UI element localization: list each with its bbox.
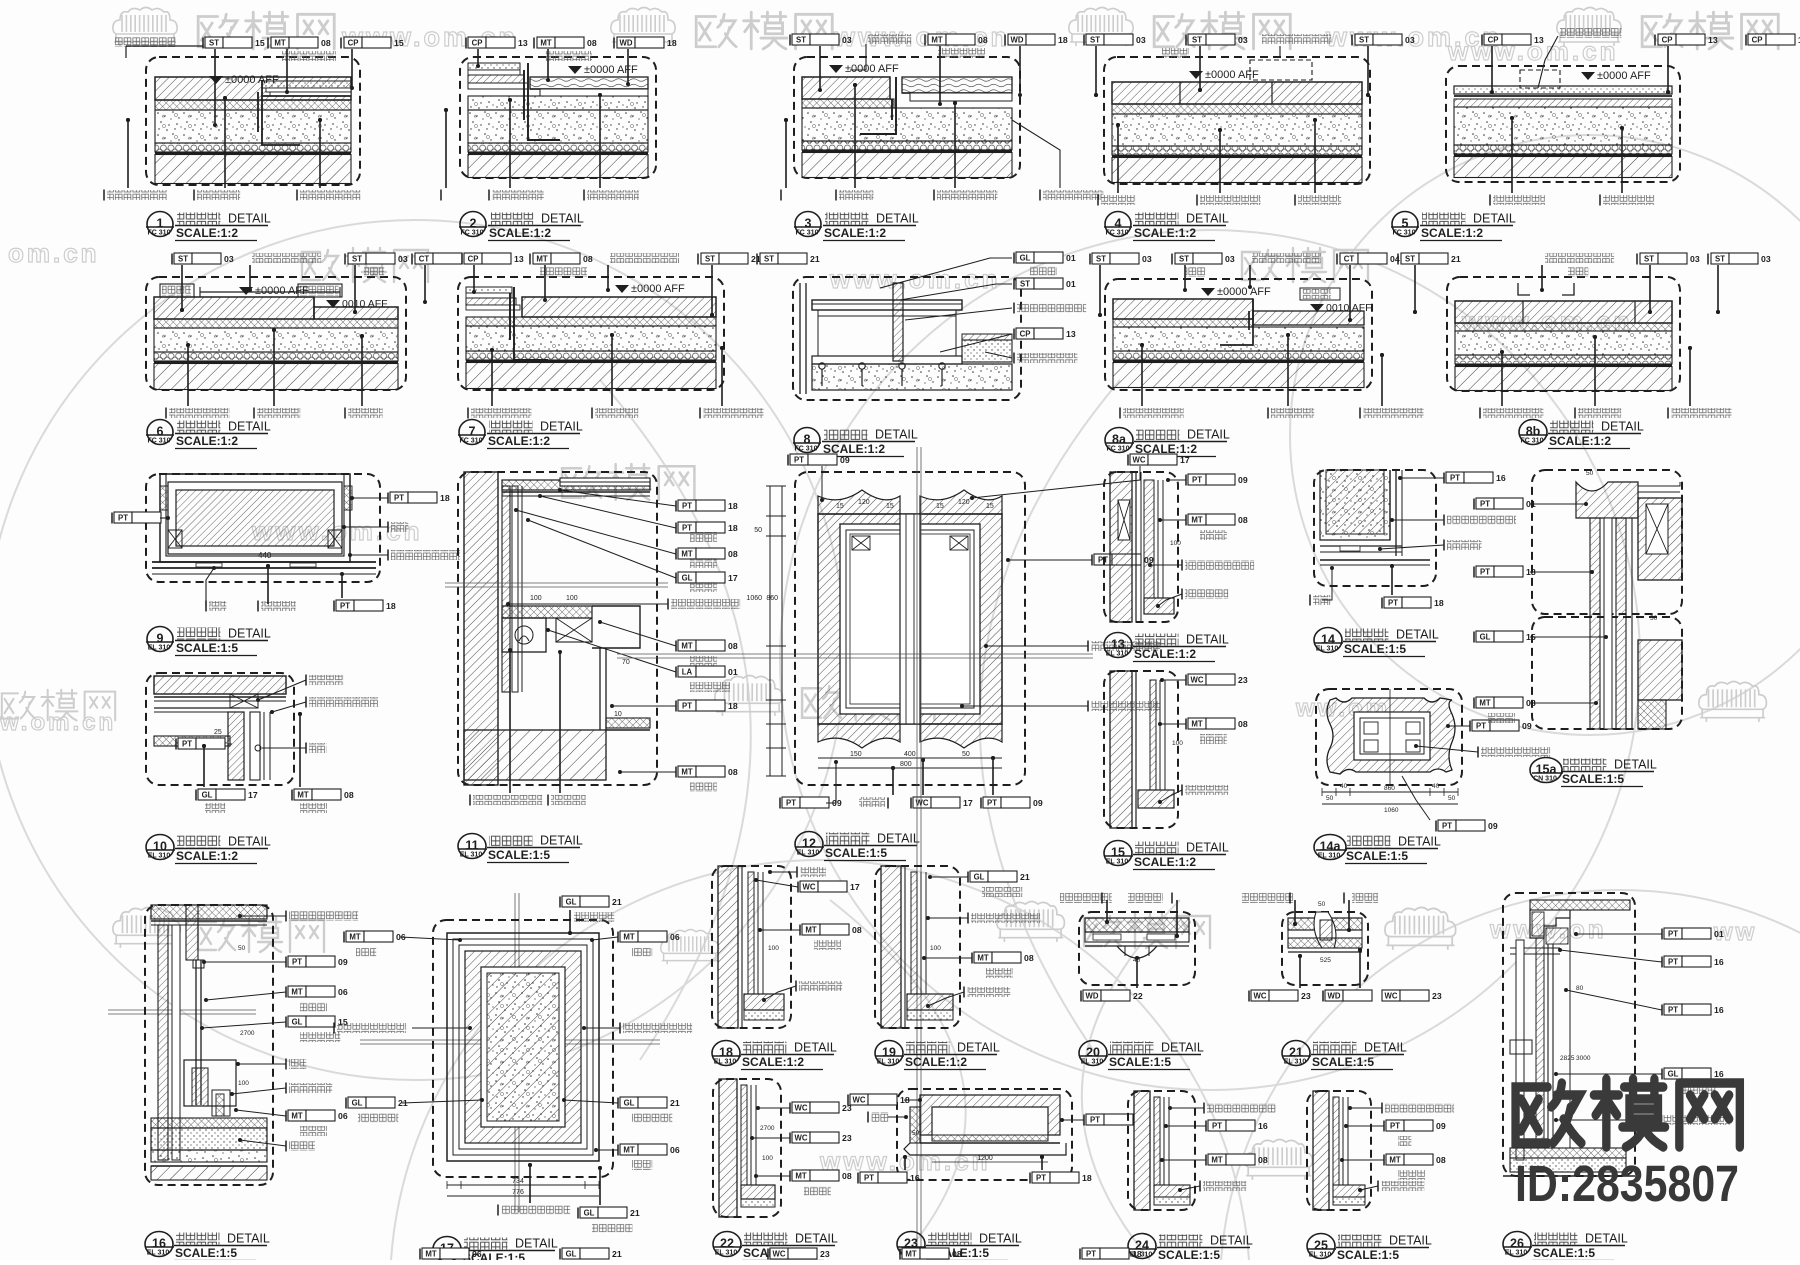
- svg-text:03: 03: [842, 35, 852, 45]
- svg-text:100: 100: [768, 945, 779, 952]
- svg-text:18: 18: [728, 501, 738, 511]
- svg-text:16: 16: [1714, 1069, 1724, 1079]
- svg-text:SCALE:1:2: SCALE:1:2: [176, 849, 238, 863]
- svg-text:DETAIL: DETAIL: [957, 1041, 1000, 1055]
- svg-text:1060: 1060: [746, 595, 762, 602]
- svg-text:860: 860: [1384, 785, 1395, 792]
- svg-text:DETAIL: DETAIL: [877, 832, 920, 846]
- svg-text:23: 23: [842, 1133, 852, 1143]
- svg-text:MT: MT: [681, 768, 692, 777]
- svg-text:ST: ST: [1096, 255, 1106, 264]
- svg-text:18: 18: [667, 38, 677, 48]
- svg-text:PT: PT: [987, 799, 997, 808]
- svg-text:06: 06: [338, 987, 348, 997]
- svg-text:WC: WC: [853, 1096, 866, 1105]
- svg-text:±0000 AFF: ±0000 AFF: [255, 285, 309, 297]
- svg-text:40: 40: [1432, 783, 1440, 790]
- svg-text:50: 50: [962, 751, 970, 758]
- svg-text:860: 860: [766, 595, 778, 602]
- svg-text:06: 06: [670, 1145, 680, 1155]
- svg-text:MT: MT: [905, 1250, 916, 1259]
- svg-text:DETAIL: DETAIL: [1601, 420, 1644, 434]
- svg-text:09: 09: [338, 957, 348, 967]
- svg-text:EL 310: EL 310: [1318, 853, 1341, 860]
- svg-text:SCALE:1:2: SCALE:1:2: [1134, 855, 1196, 869]
- svg-text:15: 15: [394, 38, 404, 48]
- svg-text:734: 734: [512, 1178, 524, 1185]
- svg-text:1200: 1200: [977, 1155, 993, 1162]
- svg-text:18: 18: [728, 701, 738, 711]
- svg-text:09: 09: [1238, 475, 1248, 485]
- svg-text:GL: GL: [682, 574, 693, 583]
- svg-text:800: 800: [900, 761, 912, 768]
- svg-text:DETAIL: DETAIL: [228, 420, 271, 434]
- svg-text:03: 03: [1690, 254, 1700, 264]
- svg-text:GL: GL: [292, 1018, 303, 1027]
- svg-text:MT: MT: [274, 39, 285, 48]
- svg-text:MT: MT: [1191, 516, 1202, 525]
- svg-text:PT: PT: [394, 494, 404, 503]
- svg-text:400: 400: [904, 751, 916, 758]
- svg-text:16: 16: [1496, 473, 1506, 483]
- svg-text:WD: WD: [1086, 992, 1099, 1001]
- svg-text:17: 17: [850, 882, 860, 892]
- svg-text:50: 50: [1448, 795, 1456, 802]
- svg-text:23: 23: [820, 1249, 830, 1259]
- svg-text:WC: WC: [1254, 992, 1267, 1001]
- svg-text:SCALE:1:2: SCALE:1:2: [1134, 226, 1196, 240]
- svg-text:CP: CP: [1752, 36, 1763, 45]
- svg-text:SCALE:1:5: SCALE:1:5: [1562, 772, 1624, 786]
- svg-text:06: 06: [670, 932, 680, 942]
- svg-text:FC 310: FC 310: [1521, 438, 1544, 445]
- svg-text:23: 23: [1432, 991, 1442, 1001]
- svg-text:SCALE:1:5: SCALE:1:5: [1158, 1248, 1220, 1260]
- svg-text:±0000 AFF: ±0000 AFF: [845, 63, 899, 75]
- svg-text:14a: 14a: [1320, 840, 1342, 854]
- svg-text:03: 03: [1136, 35, 1146, 45]
- svg-text:11: 11: [465, 839, 478, 853]
- svg-text:SCALE:1:2: SCALE:1:2: [176, 434, 238, 448]
- svg-text:120: 120: [958, 499, 970, 506]
- svg-text:14: 14: [1321, 633, 1335, 647]
- svg-text:SCALE:1:5: SCALE:1:5: [488, 848, 550, 862]
- svg-text:15: 15: [1111, 846, 1125, 860]
- svg-text:21: 21: [1289, 1046, 1303, 1060]
- svg-text:SCALE:1:5: SCALE:1:5: [175, 1246, 237, 1260]
- svg-text:8b: 8b: [1526, 425, 1541, 439]
- svg-text:SCALE:1:5: SCALE:1:5: [176, 641, 238, 655]
- svg-text:08: 08: [321, 38, 331, 48]
- svg-text:ST: ST: [764, 255, 774, 264]
- svg-text:ST: ST: [705, 255, 715, 264]
- svg-text:SCALE:1:2: SCALE:1:2: [1549, 434, 1611, 448]
- svg-text:DETAIL: DETAIL: [1187, 428, 1230, 442]
- svg-text:±0000 AFF: ±0000 AFF: [584, 64, 638, 76]
- svg-text:100: 100: [762, 1155, 773, 1162]
- svg-text:SCALE:1:2: SCALE:1:2: [1421, 226, 1483, 240]
- svg-text:3: 3: [805, 217, 812, 231]
- svg-text:13: 13: [514, 254, 524, 264]
- svg-text:08: 08: [1238, 515, 1248, 525]
- svg-text:16: 16: [1714, 1005, 1724, 1015]
- svg-text:50: 50: [912, 1130, 920, 1137]
- svg-text:440: 440: [258, 551, 272, 560]
- svg-text:DETAIL: DETAIL: [876, 212, 919, 226]
- svg-text:25: 25: [214, 729, 222, 736]
- svg-text:PT: PT: [1480, 500, 1490, 509]
- svg-text:CN 310: CN 310: [1533, 776, 1557, 783]
- svg-text:PT: PT: [1212, 1122, 1222, 1131]
- svg-text:08: 08: [1238, 719, 1248, 729]
- svg-text:100: 100: [566, 595, 578, 602]
- svg-text:18: 18: [386, 601, 396, 611]
- svg-text:08: 08: [842, 1171, 852, 1181]
- svg-text:CP: CP: [472, 39, 483, 48]
- svg-text:PT: PT: [794, 456, 804, 465]
- svg-text:SCALE:1:5: SCALE:1:5: [1344, 642, 1406, 656]
- svg-text:PT: PT: [1480, 568, 1490, 577]
- svg-text:EL 310: EL 310: [714, 1059, 737, 1066]
- svg-text:DETAIL: DETAIL: [227, 1232, 270, 1246]
- svg-text:17: 17: [963, 798, 973, 808]
- svg-text:FC 310: FC 310: [1107, 446, 1130, 453]
- svg-text:08: 08: [728, 549, 738, 559]
- svg-text:EL 310: EL 310: [460, 852, 483, 859]
- svg-text:DETAIL: DETAIL: [540, 834, 583, 848]
- svg-text:WD: WD: [620, 39, 633, 48]
- svg-text:776: 776: [512, 1189, 524, 1196]
- svg-text:DETAIL: DETAIL: [515, 1237, 558, 1251]
- svg-text:DETAIL: DETAIL: [794, 1041, 837, 1055]
- svg-text:PT: PT: [786, 799, 796, 808]
- svg-text:GL: GL: [974, 873, 985, 882]
- svg-text:PT: PT: [1442, 822, 1452, 831]
- svg-text:19: 19: [882, 1046, 896, 1060]
- svg-text:EL 310: EL 310: [1284, 1059, 1307, 1066]
- svg-text:7: 7: [469, 425, 476, 439]
- svg-text:EL 310: EL 310: [1505, 1250, 1528, 1257]
- svg-text:ST: ST: [178, 255, 188, 264]
- svg-text:525: 525: [1320, 957, 1331, 964]
- svg-text:PT: PT: [682, 524, 692, 533]
- svg-text:01: 01: [1714, 929, 1724, 939]
- svg-text:9: 9: [157, 632, 164, 646]
- svg-text:100: 100: [930, 945, 941, 952]
- svg-text:FC 310: FC 310: [148, 230, 171, 237]
- svg-text:2825: 2825: [1560, 1055, 1575, 1062]
- svg-text:22: 22: [720, 1237, 734, 1251]
- svg-text:MT: MT: [977, 954, 988, 963]
- svg-text:SCALE:1:2: SCALE:1:2: [824, 226, 886, 240]
- svg-text:SCALE:1:5: SCALE:1:5: [1109, 1055, 1171, 1069]
- svg-text:SCALE:1:2: SCALE:1:2: [176, 226, 238, 240]
- svg-text:EL 310: EL 310: [1106, 859, 1129, 866]
- svg-text:08: 08: [344, 790, 354, 800]
- svg-text:09: 09: [1522, 721, 1532, 731]
- svg-text:1: 1: [157, 217, 164, 231]
- svg-text:15: 15: [986, 503, 994, 510]
- svg-text:LA: LA: [682, 668, 693, 677]
- svg-text:2: 2: [470, 217, 477, 231]
- svg-text:13: 13: [1111, 638, 1125, 652]
- svg-text:PT: PT: [1476, 722, 1486, 731]
- svg-text:FC 310: FC 310: [460, 438, 483, 445]
- svg-text:18: 18: [440, 493, 450, 503]
- svg-text:50: 50: [238, 945, 246, 952]
- svg-text:40: 40: [1340, 783, 1348, 790]
- svg-text:ST: ST: [1644, 255, 1654, 264]
- svg-text:03: 03: [1405, 35, 1415, 45]
- svg-text:16: 16: [152, 1237, 166, 1251]
- svg-text:09: 09: [1033, 798, 1043, 808]
- svg-text:21: 21: [670, 1098, 680, 1108]
- svg-text:PT: PT: [1192, 476, 1202, 485]
- svg-text:MT: MT: [1211, 1156, 1222, 1165]
- svg-text:DETAIL: DETAIL: [541, 212, 584, 226]
- svg-text:GL: GL: [1020, 254, 1031, 263]
- svg-text:FC 310: FC 310: [795, 446, 818, 453]
- svg-text:MT: MT: [805, 926, 816, 935]
- svg-text:EL 310: EL 310: [1081, 1059, 1104, 1066]
- svg-text:3000: 3000: [1576, 1055, 1591, 1062]
- svg-text:ID:2835807: ID:2835807: [1515, 1155, 1739, 1212]
- svg-text:DETAIL: DETAIL: [875, 428, 918, 442]
- svg-text:SCALE:1:2: SCALE:1:2: [488, 434, 550, 448]
- svg-text:EL 310: EL 310: [877, 1059, 900, 1066]
- svg-text:DETAIL: DETAIL: [1585, 1232, 1628, 1246]
- svg-text:WC: WC: [1385, 992, 1398, 1001]
- svg-text:18: 18: [719, 1046, 733, 1060]
- svg-text:FC 310: FC 310: [796, 230, 819, 237]
- svg-text:PT: PT: [1668, 930, 1678, 939]
- svg-text:50: 50: [1650, 615, 1658, 622]
- svg-text:PT: PT: [1388, 599, 1398, 608]
- svg-text:DETAIL: DETAIL: [228, 212, 271, 226]
- svg-text:MT: MT: [291, 988, 302, 997]
- svg-text:ST: ST: [1405, 255, 1415, 264]
- svg-text:WC: WC: [916, 799, 929, 808]
- svg-text:MT: MT: [1479, 699, 1490, 708]
- svg-text:GL: GL: [566, 898, 577, 907]
- svg-text:EL 310: EL 310: [1309, 1252, 1332, 1259]
- svg-text:SCALE:1:5: SCALE:1:5: [825, 846, 887, 860]
- svg-text:MT: MT: [1389, 1156, 1400, 1165]
- svg-text:SCALE:1:5: SCALE:1:5: [1533, 1246, 1595, 1260]
- svg-text:MT: MT: [681, 550, 692, 559]
- svg-text:01: 01: [728, 667, 738, 677]
- svg-text:18: 18: [1082, 1173, 1092, 1183]
- svg-text:EL 310: EL 310: [148, 645, 171, 652]
- svg-text:SCALE:1:2: SCALE:1:2: [1134, 647, 1196, 661]
- svg-text:21: 21: [612, 897, 622, 907]
- svg-text:FC 310: FC 310: [148, 438, 171, 445]
- svg-text:DETAIL: DETAIL: [1186, 633, 1229, 647]
- svg-text:PT: PT: [118, 514, 128, 523]
- svg-text:PT: PT: [682, 502, 692, 511]
- svg-text:08: 08: [728, 641, 738, 651]
- svg-text:06: 06: [338, 1111, 348, 1121]
- svg-text:80: 80: [1576, 985, 1584, 992]
- svg-text:18: 18: [1434, 598, 1444, 608]
- svg-text:15a: 15a: [1536, 763, 1558, 777]
- svg-text:DETAIL: DETAIL: [228, 627, 271, 641]
- svg-text:±0000 AFF: ±0000 AFF: [1205, 69, 1259, 81]
- svg-text:MT: MT: [681, 642, 692, 651]
- svg-text:23: 23: [1301, 991, 1311, 1001]
- svg-text:PT: PT: [1036, 1174, 1046, 1183]
- svg-text:MT: MT: [931, 36, 942, 45]
- svg-text:01: 01: [1066, 279, 1076, 289]
- svg-text:09: 09: [1436, 1121, 1446, 1131]
- svg-text:MT: MT: [795, 1172, 806, 1181]
- svg-text:01: 01: [1066, 253, 1076, 263]
- svg-text:16: 16: [910, 1173, 920, 1183]
- svg-text:120: 120: [858, 499, 870, 506]
- svg-text:CP: CP: [348, 39, 359, 48]
- svg-text:21: 21: [1451, 254, 1461, 264]
- svg-text:09: 09: [840, 455, 850, 465]
- svg-text:08: 08: [978, 35, 988, 45]
- svg-text:PT: PT: [1090, 1116, 1100, 1125]
- svg-text:08: 08: [952, 1249, 962, 1259]
- svg-text:WC: WC: [1133, 456, 1146, 465]
- svg-text:DETAIL: DETAIL: [1186, 841, 1229, 855]
- svg-text:1060: 1060: [1384, 807, 1399, 814]
- svg-text:MT: MT: [349, 933, 360, 942]
- svg-text:FC 310: FC 310: [461, 230, 484, 237]
- svg-text:SCALE:1:2: SCALE:1:2: [905, 1055, 967, 1069]
- svg-text:13: 13: [1708, 35, 1718, 45]
- svg-text:13: 13: [1066, 329, 1076, 339]
- svg-text:PT: PT: [182, 740, 192, 749]
- svg-text:12: 12: [802, 837, 816, 851]
- svg-text:08: 08: [1436, 1155, 1446, 1165]
- svg-text:EL 310: EL 310: [797, 850, 820, 857]
- svg-text:15: 15: [836, 503, 844, 510]
- svg-text:w.om.cn: w.om.cn: [0, 709, 116, 736]
- svg-text:SCALE:1:5: SCALE:1:5: [1346, 849, 1408, 863]
- svg-text:EL 310: EL 310: [1106, 651, 1129, 658]
- svg-text:ST: ST: [1090, 36, 1100, 45]
- svg-text:08: 08: [1258, 1155, 1268, 1165]
- svg-text:ST: ST: [1715, 255, 1725, 264]
- svg-text:ST: ST: [1020, 280, 1030, 289]
- svg-text:±0000 AFF: ±0000 AFF: [225, 74, 279, 86]
- svg-text:SCALE:1:5: SCALE:1:5: [1312, 1055, 1374, 1069]
- svg-text:18: 18: [728, 523, 738, 533]
- svg-text:GL: GL: [566, 1250, 577, 1259]
- svg-text:17: 17: [248, 790, 258, 800]
- svg-text:17: 17: [1180, 455, 1190, 465]
- svg-text:PT: PT: [1086, 1250, 1096, 1259]
- svg-text:21: 21: [1020, 872, 1030, 882]
- svg-text:GL: GL: [584, 1209, 595, 1218]
- svg-text:03: 03: [224, 254, 234, 264]
- svg-text:ST: ST: [1359, 36, 1369, 45]
- svg-text:08: 08: [852, 925, 862, 935]
- svg-text:08: 08: [587, 38, 597, 48]
- svg-text:0010 AFF: 0010 AFF: [342, 298, 388, 310]
- svg-text:18: 18: [1132, 1249, 1142, 1259]
- svg-text:10: 10: [153, 840, 167, 854]
- svg-text:CP: CP: [468, 255, 479, 264]
- svg-text:MT: MT: [291, 1112, 302, 1121]
- svg-text:WD: WD: [1328, 992, 1341, 1001]
- svg-text:23: 23: [1238, 675, 1248, 685]
- svg-text:100: 100: [530, 595, 542, 602]
- svg-text:DETAIL: DETAIL: [540, 420, 583, 434]
- svg-text:ST: ST: [209, 39, 219, 48]
- svg-text:www.om.cn: www.om.cn: [1447, 36, 1619, 66]
- svg-text:MT: MT: [536, 255, 547, 264]
- svg-text:WC: WC: [773, 1250, 786, 1259]
- svg-text:MT: MT: [297, 791, 308, 800]
- svg-text:om.cn: om.cn: [8, 238, 100, 268]
- svg-text:GL: GL: [1480, 633, 1491, 642]
- svg-text:PT: PT: [1668, 1006, 1678, 1015]
- svg-text:ST: ST: [796, 36, 806, 45]
- svg-text:CP: CP: [1020, 330, 1031, 339]
- svg-text:100: 100: [1172, 740, 1183, 747]
- svg-text:PT: PT: [1668, 958, 1678, 967]
- svg-text:±0000 AFF: ±0000 AFF: [1597, 70, 1651, 82]
- svg-text:100: 100: [1170, 540, 1181, 547]
- svg-text:DETAIL: DETAIL: [1186, 212, 1229, 226]
- svg-text:22: 22: [1133, 991, 1143, 1001]
- svg-text:DETAIL: DETAIL: [1614, 758, 1657, 772]
- svg-text:CT: CT: [1344, 255, 1355, 264]
- svg-text:13: 13: [518, 38, 528, 48]
- svg-text:6: 6: [157, 425, 164, 439]
- svg-text:PT: PT: [340, 602, 350, 611]
- svg-text:MT: MT: [1191, 720, 1202, 729]
- svg-text:16: 16: [1714, 957, 1724, 967]
- svg-text:EL 310: EL 310: [147, 1250, 170, 1257]
- svg-text:70: 70: [622, 659, 630, 666]
- svg-text:PT: PT: [864, 1174, 874, 1183]
- svg-text:ST: ST: [352, 255, 362, 264]
- svg-text:08: 08: [1024, 953, 1034, 963]
- svg-text:GL: GL: [202, 791, 213, 800]
- svg-text:DETAIL: DETAIL: [1473, 212, 1516, 226]
- svg-text:5: 5: [1402, 217, 1409, 231]
- svg-text:GL: GL: [624, 1099, 635, 1108]
- svg-text:PT: PT: [1390, 1122, 1400, 1131]
- svg-text:09: 09: [1488, 821, 1498, 831]
- svg-text:MT: MT: [623, 1146, 634, 1155]
- svg-text:CT: CT: [419, 255, 430, 264]
- svg-text:08: 08: [728, 767, 738, 777]
- svg-text:FC 310: FC 310: [1106, 230, 1129, 237]
- svg-text:DETAIL: DETAIL: [228, 835, 271, 849]
- svg-text:15: 15: [255, 38, 265, 48]
- svg-text:15: 15: [886, 503, 894, 510]
- svg-text:8a: 8a: [1112, 433, 1127, 447]
- svg-text:08: 08: [583, 254, 593, 264]
- svg-text:150: 150: [850, 751, 862, 758]
- svg-text:SCALE:1:5: SCALE:1:5: [1337, 1248, 1399, 1260]
- svg-text:20: 20: [1086, 1046, 1100, 1060]
- svg-text:DETAIL: DETAIL: [1396, 628, 1439, 642]
- svg-text:±0000 AFF: ±0000 AFF: [631, 283, 685, 295]
- svg-text:ST: ST: [1192, 36, 1202, 45]
- svg-text:03: 03: [1238, 35, 1248, 45]
- svg-text:CP: CP: [1488, 36, 1499, 45]
- svg-text:25: 25: [1314, 1239, 1328, 1253]
- svg-text:21: 21: [612, 1249, 622, 1259]
- svg-text:10: 10: [614, 711, 622, 718]
